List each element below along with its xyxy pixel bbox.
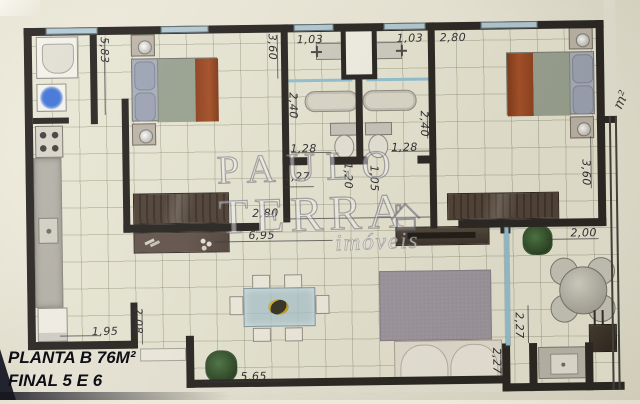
window bbox=[481, 21, 538, 29]
dimension-label: 2,80 bbox=[252, 207, 279, 220]
lamp-icon bbox=[576, 33, 590, 47]
bathroom1-bathtub bbox=[304, 90, 358, 112]
balcony-table-set bbox=[550, 257, 615, 322]
laundry-tank-sink bbox=[36, 84, 66, 112]
pillow bbox=[572, 85, 593, 114]
dimension-label: 3,60 bbox=[266, 34, 279, 61]
floor-plan: 5,83 3,60 1,03 1,03 2,80 2,40 2,40 1,28 … bbox=[0, 0, 640, 404]
plan-subtitle: FINAL 5 E 6 bbox=[8, 371, 102, 391]
washer-door bbox=[42, 43, 74, 73]
window bbox=[384, 23, 426, 31]
bathroom2-toilet bbox=[368, 134, 388, 158]
window bbox=[294, 24, 334, 32]
stove bbox=[35, 126, 63, 158]
dimension-label: 1,27 bbox=[284, 170, 311, 183]
dimension-label: 2,08 bbox=[131, 307, 144, 334]
bed-blanket-orange bbox=[507, 53, 534, 116]
plant bbox=[522, 225, 552, 255]
dimension-label: 1,28 bbox=[290, 142, 317, 155]
lamp-icon bbox=[138, 40, 152, 54]
pillow bbox=[134, 61, 155, 90]
dimension-label: 1,03 bbox=[297, 33, 324, 46]
bathroom1-toilet bbox=[334, 135, 354, 159]
dining-chair bbox=[315, 295, 329, 314]
bedroom2-nightstand bbox=[569, 27, 593, 49]
dimension-label: 2,80 bbox=[440, 31, 467, 44]
tv bbox=[407, 232, 475, 239]
dining-chair bbox=[229, 296, 243, 315]
dimension-label: 1,20 bbox=[341, 163, 354, 190]
faucet-icon bbox=[311, 46, 322, 57]
wall bbox=[282, 157, 307, 165]
dimension-label: 1,03 bbox=[397, 32, 424, 45]
wall bbox=[355, 79, 363, 164]
dimension-label: 1,95 bbox=[92, 325, 119, 338]
bedroom1-nightstand bbox=[131, 34, 155, 56]
decor-item bbox=[201, 239, 206, 244]
wall bbox=[33, 117, 69, 124]
bedroom1-nightstand bbox=[132, 123, 156, 145]
dimension-label: 1,28 bbox=[391, 141, 418, 154]
decor-item bbox=[144, 238, 154, 245]
dimension-label: 2,27 bbox=[490, 347, 503, 374]
dimension-label: 1,05 bbox=[368, 165, 381, 192]
bedroom1-bed bbox=[131, 57, 218, 121]
ventilation-shaft bbox=[341, 25, 378, 79]
lamp-icon bbox=[139, 129, 153, 143]
dimension-label: 6,95 bbox=[248, 229, 275, 242]
rug bbox=[379, 270, 492, 342]
dimension-label: 2,27 bbox=[513, 312, 526, 339]
lamp-icon bbox=[577, 122, 591, 136]
dining-table bbox=[243, 287, 316, 327]
bathroom2-bathtub bbox=[362, 90, 416, 112]
refrigerator bbox=[37, 308, 67, 342]
dimension-label: 2,40 bbox=[418, 110, 431, 137]
bed-blanket-orange bbox=[195, 58, 219, 121]
dimension-label: 2,00 bbox=[570, 226, 597, 239]
window bbox=[46, 27, 98, 35]
washing-machine bbox=[36, 36, 79, 79]
plant bbox=[205, 350, 237, 382]
plan-title: PLANTA B 76M² bbox=[8, 348, 136, 368]
pillow bbox=[134, 92, 155, 121]
window bbox=[161, 26, 209, 34]
grill-skewers bbox=[594, 310, 596, 325]
dimension-label: 5,83 bbox=[98, 37, 111, 64]
bed-blanket-green bbox=[533, 52, 571, 116]
sink-drain bbox=[561, 363, 565, 367]
bedroom2-bed bbox=[506, 51, 595, 115]
bedroom2-wardrobe bbox=[447, 192, 559, 221]
entry-step bbox=[140, 348, 186, 362]
dimension-label: 2,40 bbox=[286, 92, 299, 119]
bedroom2-nightstand bbox=[570, 116, 594, 138]
dining-chair bbox=[285, 327, 303, 341]
kitchen-sink bbox=[38, 218, 58, 244]
bed-blanket-green bbox=[157, 59, 197, 123]
balcony-sink bbox=[550, 353, 578, 374]
faucet-icon bbox=[396, 45, 407, 56]
tv-rack bbox=[395, 226, 489, 246]
bedroom1-wardrobe bbox=[133, 192, 229, 224]
pillow bbox=[572, 54, 593, 83]
dimension-label: 5,65 bbox=[240, 370, 267, 383]
table-centerpiece bbox=[268, 299, 288, 314]
wall bbox=[90, 27, 98, 124]
dining-chair bbox=[253, 328, 271, 342]
dimension-label: 3,60 bbox=[579, 159, 592, 186]
wall bbox=[503, 382, 625, 392]
sink-drain bbox=[46, 229, 51, 234]
balcony-sink-counter bbox=[538, 346, 586, 379]
